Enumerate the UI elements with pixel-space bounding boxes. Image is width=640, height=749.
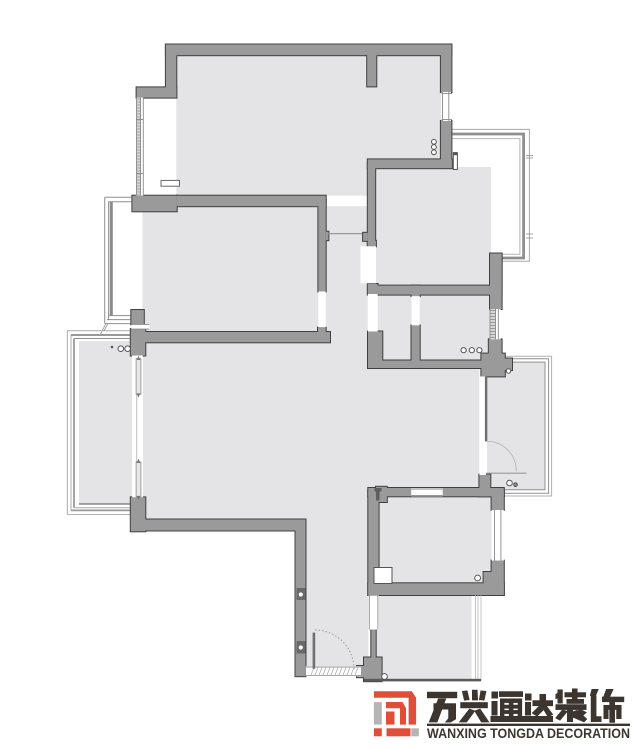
svg-text:WANXING TONGDA DECORATION: WANXING TONGDA DECORATION xyxy=(427,726,630,742)
